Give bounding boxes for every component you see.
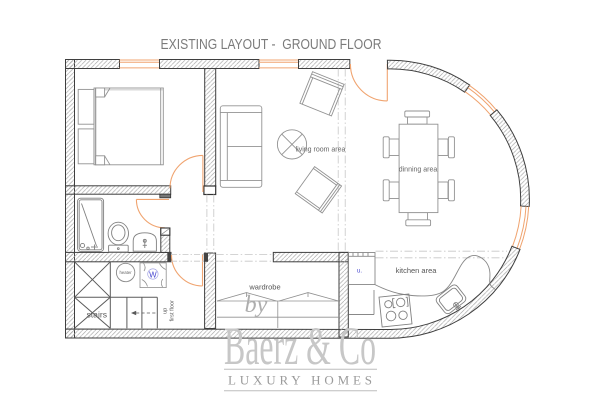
svg-text:up: up xyxy=(163,308,169,314)
svg-text:dinning area: dinning area xyxy=(399,167,438,174)
svg-text:first floor: first floor xyxy=(170,300,176,322)
svg-text:by: by xyxy=(245,292,268,318)
svg-text:wardrobe: wardrobe xyxy=(248,283,280,292)
svg-text:stairs: stairs xyxy=(87,310,108,320)
svg-text:heater: heater xyxy=(120,270,133,275)
svg-text:kitchen area: kitchen area xyxy=(396,266,438,275)
svg-text:EXISTING LAYOUT - GROUND FLOO: EXISTING LAYOUT - GROUND FLOOR xyxy=(161,36,382,53)
svg-text:Baerz & Co: Baerz & Co xyxy=(224,316,376,376)
svg-text:u.: u. xyxy=(357,269,362,275)
svg-text:living room area: living room area xyxy=(296,146,346,153)
svg-text:W: W xyxy=(149,270,157,279)
